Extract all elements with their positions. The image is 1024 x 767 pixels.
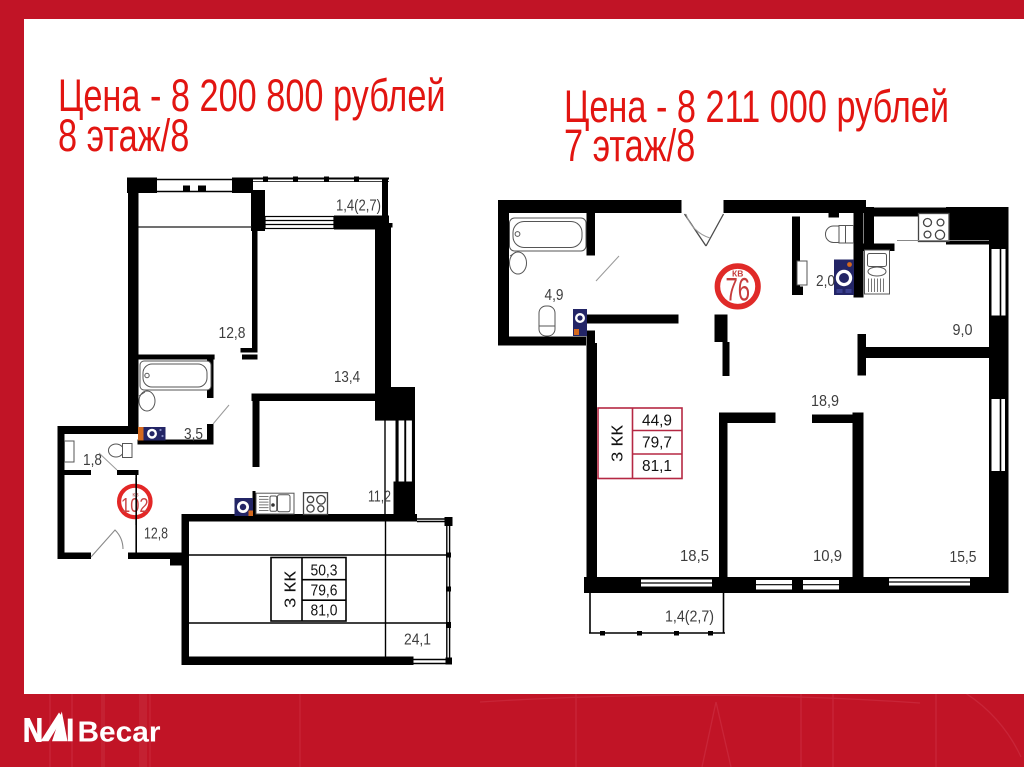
svg-text:15,5: 15,5 (950, 549, 977, 566)
svg-text:18,9: 18,9 (811, 393, 839, 410)
svg-text:81,1: 81,1 (642, 458, 672, 475)
svg-text:2,0: 2,0 (816, 273, 835, 290)
svg-text:1,8: 1,8 (83, 452, 102, 469)
svg-text:12,8: 12,8 (219, 325, 246, 342)
svg-text:1,4(2,7): 1,4(2,7) (336, 198, 381, 215)
svg-text:79,7: 79,7 (642, 435, 672, 452)
svg-text:81,0: 81,0 (311, 603, 338, 620)
svg-text:79,6: 79,6 (311, 583, 338, 600)
svg-text:13,4: 13,4 (334, 369, 360, 386)
svg-text:9,0: 9,0 (953, 322, 973, 339)
svg-text:3 КК: 3 КК (610, 424, 627, 462)
svg-text:44,9: 44,9 (642, 413, 672, 430)
svg-text:12,8: 12,8 (144, 526, 168, 543)
svg-text:24,1: 24,1 (404, 632, 431, 649)
svg-text:76: 76 (725, 272, 750, 308)
svg-text:50,3: 50,3 (311, 563, 338, 580)
svg-text:3 КК: 3 КК (283, 570, 300, 608)
svg-text:1,4(2,7): 1,4(2,7) (665, 609, 714, 626)
svg-text:18,5: 18,5 (680, 548, 709, 565)
svg-text:10,9: 10,9 (813, 548, 842, 565)
svg-text:102: 102 (121, 495, 149, 517)
svg-text:11,2: 11,2 (368, 489, 391, 506)
svg-text:4,9: 4,9 (545, 287, 564, 304)
svg-text:3,5: 3,5 (184, 426, 203, 443)
